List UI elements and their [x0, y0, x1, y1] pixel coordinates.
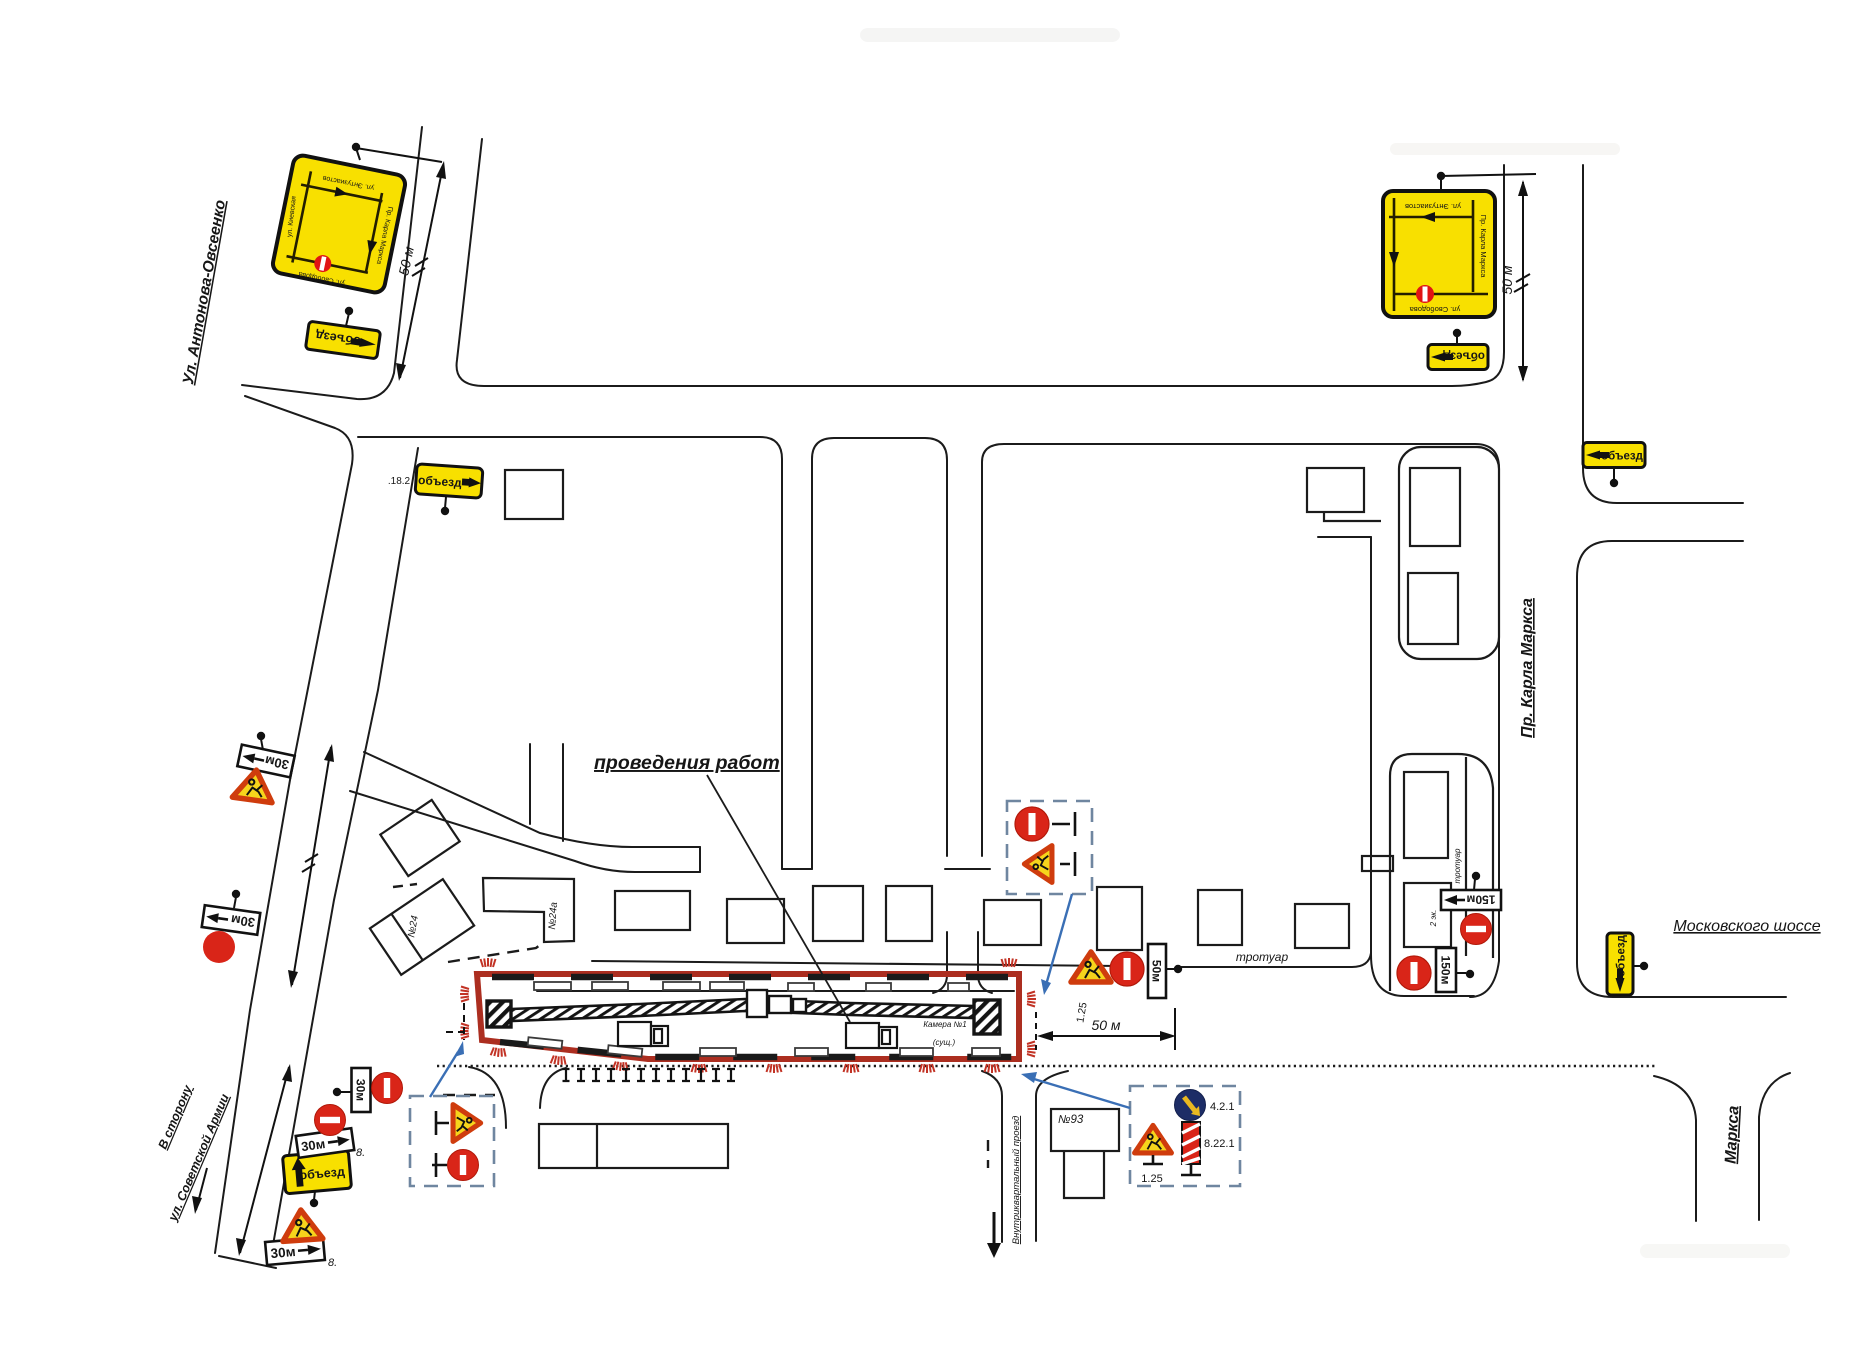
svg-text:50м: 50м	[1150, 960, 1164, 982]
svg-text:4.2.1: 4.2.1	[1210, 1101, 1234, 1113]
svg-text:ул. Свободова: ул. Свободова	[1409, 305, 1460, 314]
svg-text:№24а: №24а	[547, 901, 560, 930]
svg-text:Московского шоссе: Московского шоссе	[1673, 918, 1820, 935]
svg-text:50 м: 50 м	[1499, 265, 1515, 294]
svg-text:(сущ.): (сущ.)	[933, 1038, 956, 1047]
svg-text:проведения работ: проведения работ	[594, 752, 780, 774]
svg-text:30м: 30м	[354, 1079, 368, 1101]
svg-text:Маркса: Маркса	[1722, 1105, 1742, 1164]
svg-text:1.25: 1.25	[1141, 1173, 1162, 1185]
svg-text:.18.2: .18.2	[388, 476, 411, 487]
svg-text:8.: 8.	[328, 1257, 337, 1269]
svg-text:Внутриквартальный проезд: Внутриквартальный проезд	[1011, 1116, 1022, 1245]
svg-text:8.: 8.	[356, 1147, 365, 1159]
svg-text:2 эк.: 2 эк.	[1429, 910, 1438, 928]
svg-text:30м: 30м	[270, 1244, 296, 1261]
svg-text:тротуар: тротуар	[1236, 950, 1289, 964]
svg-text:Камера №1: Камера №1	[923, 1020, 966, 1029]
svg-text:150м: 150м	[1466, 893, 1495, 907]
svg-text:150м: 150м	[1439, 956, 1453, 985]
svg-text:50 м: 50 м	[1091, 1017, 1120, 1033]
svg-text:тротуар: тротуар	[1453, 848, 1462, 883]
svg-text:№93: №93	[1058, 1114, 1084, 1126]
svg-text:Пр. Карла Маркса: Пр. Карла Маркса	[1519, 598, 1536, 738]
svg-text:8.22.1: 8.22.1	[1204, 1138, 1235, 1150]
svg-text:Пр. Карла Маркса: Пр. Карла Маркса	[1479, 215, 1488, 279]
svg-text:ул. Энтузиастов: ул. Энтузиастов	[1405, 202, 1461, 211]
